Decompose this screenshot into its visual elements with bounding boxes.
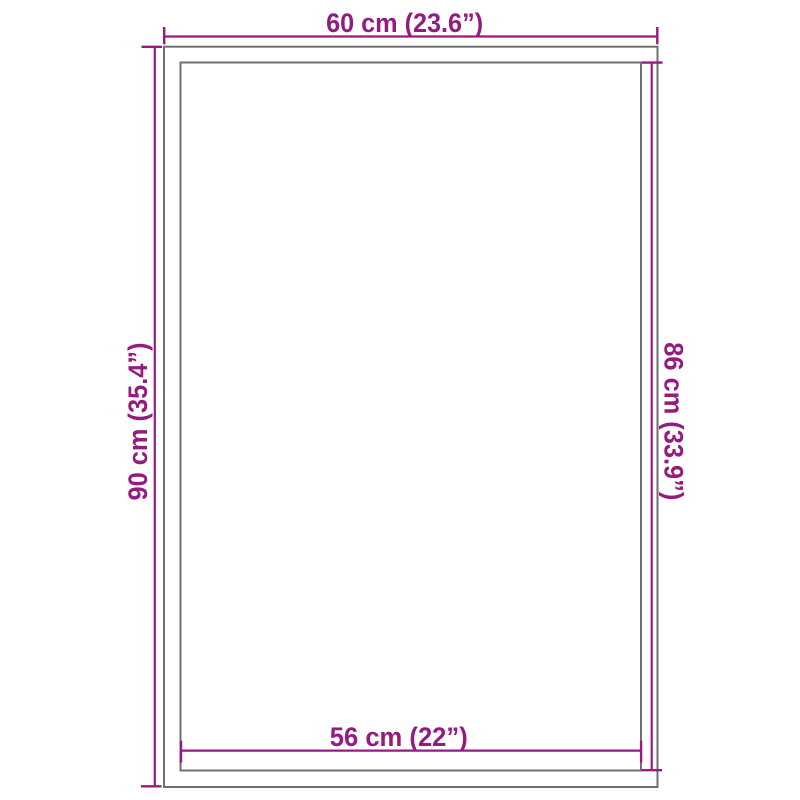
svg-text:86 cm (33.9”): 86 cm (33.9”) <box>659 342 689 500</box>
svg-text:60 cm (23.6”): 60 cm (23.6”) <box>326 8 483 38</box>
svg-text:90 cm (35.4”): 90 cm (35.4”) <box>123 343 153 501</box>
svg-text:56 cm (22”): 56 cm (22”) <box>330 722 468 752</box>
